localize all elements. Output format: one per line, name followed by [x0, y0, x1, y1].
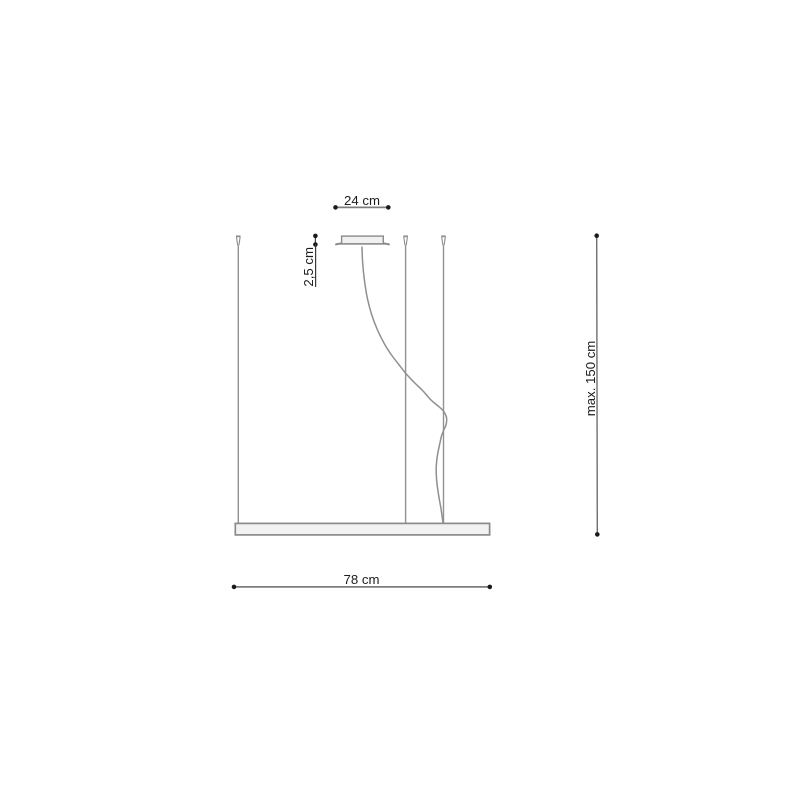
svg-text:78 cm: 78 cm — [344, 572, 380, 587]
svg-text:2,5 cm: 2,5 cm — [301, 247, 316, 287]
svg-text:max. 150 cm: max. 150 cm — [583, 341, 598, 417]
svg-text:24 cm: 24 cm — [344, 193, 380, 208]
